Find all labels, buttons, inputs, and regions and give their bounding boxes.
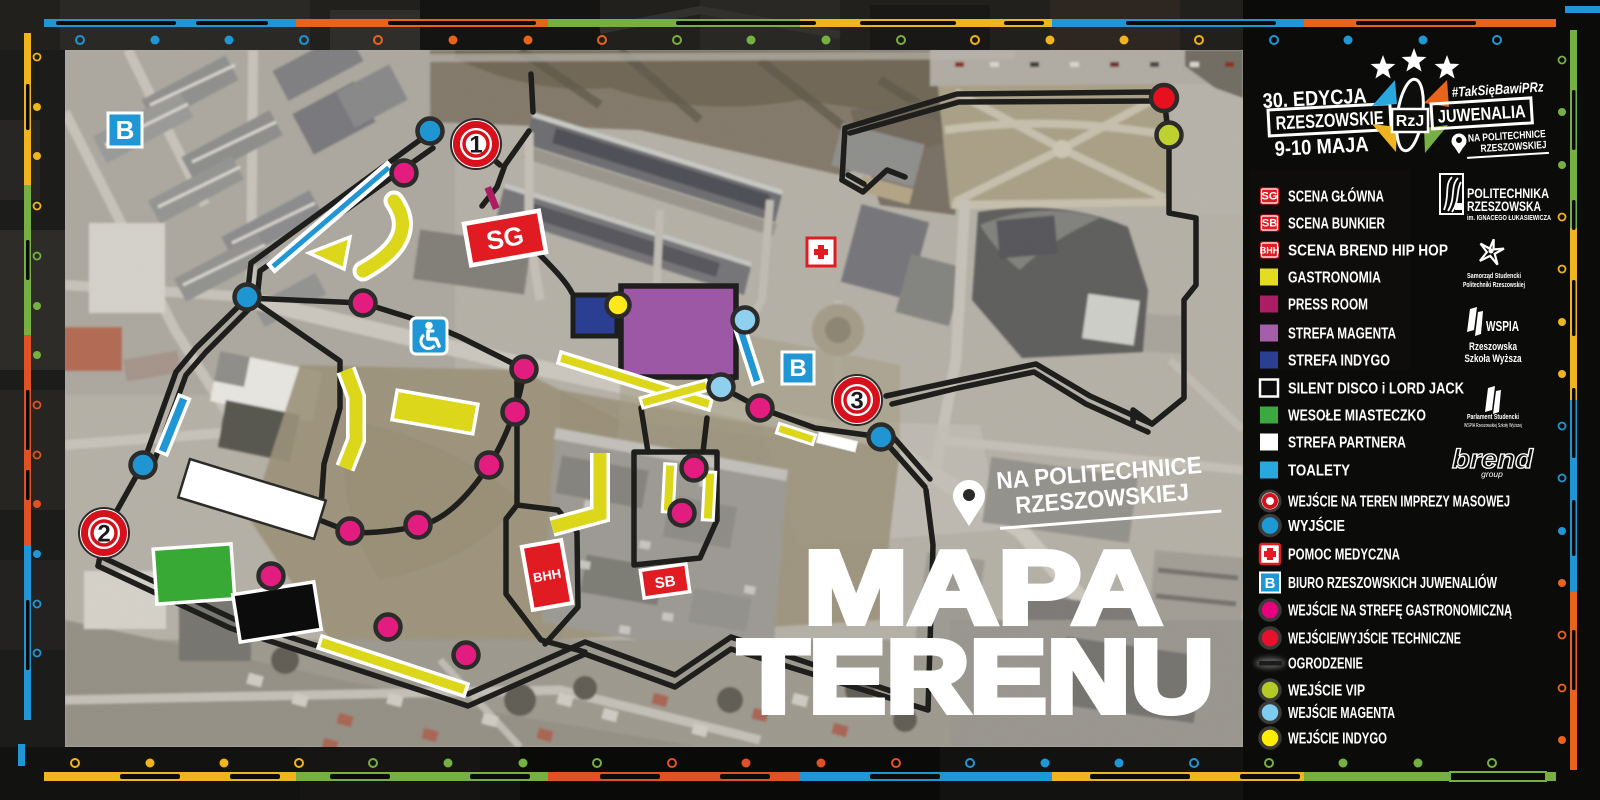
svg-text:Szkoła Wyższa: Szkoła Wyższa: [1465, 353, 1523, 365]
svg-text:RZESZOWSKA: RZESZOWSKA: [1467, 199, 1541, 214]
svg-text:SG: SG: [1262, 191, 1278, 203]
svg-text:OGRODZENIE: OGRODZENIE: [1288, 656, 1363, 673]
svg-text:SCENA BUNKIER: SCENA BUNKIER: [1288, 216, 1385, 233]
svg-text:STREFA PARTNERA: STREFA PARTNERA: [1288, 435, 1406, 452]
svg-text:GASTRONOMIA: GASTRONOMIA: [1288, 270, 1381, 287]
svg-text:WSPIA: WSPIA: [1486, 318, 1519, 335]
svg-text:9-10 MAJA: 9-10 MAJA: [1274, 133, 1369, 161]
svg-text:B: B: [789, 355, 806, 382]
svg-text:group: group: [1481, 469, 1503, 479]
svg-text:B: B: [116, 115, 135, 145]
svg-text:STREFA MAGENTA: STREFA MAGENTA: [1288, 326, 1396, 343]
svg-text:POMOC MEDYCZNA: POMOC MEDYCZNA: [1288, 547, 1400, 564]
svg-text:2: 2: [97, 521, 110, 548]
svg-text:WEJŚCIE NA STREFĘ GASTRONOMICZ: WEJŚCIE NA STREFĘ GASTRONOMICZNĄ: [1288, 601, 1512, 620]
svg-text:1: 1: [469, 132, 482, 159]
svg-text:WEJŚCIE MAGENTA: WEJŚCIE MAGENTA: [1288, 703, 1395, 722]
svg-text:TOALETY: TOALETY: [1288, 463, 1350, 480]
svg-text:Parlament Studencki: Parlament Studencki: [1467, 414, 1519, 421]
svg-text:WSPIA Rzeszowskiej Szkoły Wyżs: WSPIA Rzeszowskiej Szkoły Wyższej: [1464, 423, 1522, 429]
svg-text:SCENA BREND HIP HOP: SCENA BREND HIP HOP: [1288, 243, 1448, 260]
svg-text:Samorząd Studencki: Samorząd Studencki: [1467, 271, 1521, 280]
svg-text:WEJŚCIE INDYGO: WEJŚCIE INDYGO: [1288, 729, 1387, 748]
svg-text:SB: SB: [654, 573, 677, 593]
svg-text:WEJŚCIE/WYJŚCIE TECHNICZNE: WEJŚCIE/WYJŚCIE TECHNICZNE: [1288, 629, 1461, 648]
svg-text:WYJŚCIE: WYJŚCIE: [1288, 516, 1345, 535]
svg-text:PRESS ROOM: PRESS ROOM: [1288, 297, 1368, 314]
svg-text:WEJŚCIE VIP: WEJŚCIE VIP: [1288, 681, 1365, 700]
svg-text:SG: SG: [484, 220, 526, 256]
svg-text:BIURO RZESZOWSKICH JUWENALIÓW: BIURO RZESZOWSKICH JUWENALIÓW: [1288, 573, 1498, 592]
svg-text:TERENU: TERENU: [738, 619, 1214, 734]
svg-text:3: 3: [850, 388, 863, 415]
svg-text:SCENA GŁÓWNA: SCENA GŁÓWNA: [1288, 187, 1384, 206]
svg-text:WESOŁE MIASTECZKO: WESOŁE MIASTECZKO: [1288, 408, 1426, 425]
svg-text:im. IGNACEGO ŁUKASIEWICZA: im. IGNACEGO ŁUKASIEWICZA: [1467, 215, 1551, 222]
svg-text:Politechniki Rzeszowskiej: Politechniki Rzeszowskiej: [1463, 280, 1525, 289]
svg-text:WEJŚCIE NA TEREN IMPREZY MASOW: WEJŚCIE NA TEREN IMPREZY MASOWEJ: [1288, 492, 1510, 511]
svg-text:RzJ: RzJ: [1396, 113, 1424, 130]
svg-text:SB: SB: [1262, 218, 1277, 230]
svg-text:SILENT DISCO i LORD JACK: SILENT DISCO i LORD JACK: [1288, 381, 1464, 398]
svg-text:BHH: BHH: [1260, 246, 1280, 256]
svg-text:Rzeszowska: Rzeszowska: [1469, 341, 1518, 353]
svg-text:B: B: [1265, 575, 1276, 592]
svg-text:STREFA INDYGO: STREFA INDYGO: [1288, 353, 1390, 370]
